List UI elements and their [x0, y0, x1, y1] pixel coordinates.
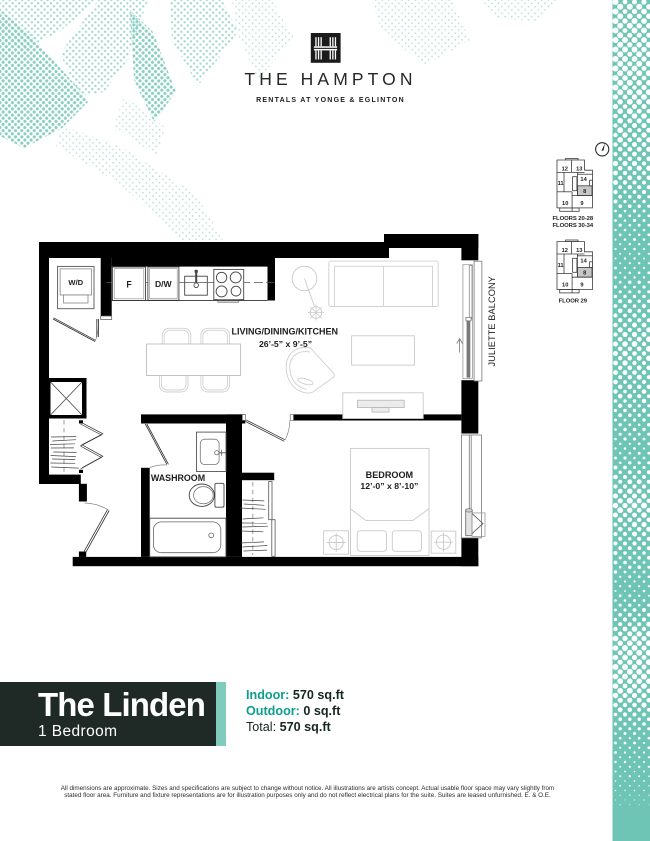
svg-text:D/W: D/W — [155, 279, 173, 289]
svg-text:12’-0” x 8’-10”: 12’-0” x 8’-10” — [360, 481, 418, 491]
svg-text:13: 13 — [576, 167, 582, 173]
svg-text:12: 12 — [562, 167, 568, 173]
svg-text:LIVING/DINING/KITCHEN: LIVING/DINING/KITCHEN — [232, 326, 339, 336]
svg-text:8: 8 — [583, 189, 586, 195]
svg-text:11: 11 — [558, 181, 564, 187]
svg-text:WASHROOM: WASHROOM — [151, 473, 205, 483]
svg-text:14: 14 — [580, 177, 587, 183]
svg-text:13: 13 — [576, 248, 582, 254]
svg-text:26’-5” x 9’-5”: 26’-5” x 9’-5” — [259, 339, 312, 349]
svg-text:FLOOR 29: FLOOR 29 — [559, 298, 588, 304]
svg-text:8: 8 — [583, 271, 586, 277]
svg-text:JULIETTE BALCONY: JULIETTE BALCONY — [487, 276, 497, 366]
svg-text:11: 11 — [558, 263, 564, 269]
svg-text:FLOORS 30-34: FLOORS 30-34 — [552, 223, 593, 229]
svg-text:FLOORS 20-28: FLOORS 20-28 — [552, 216, 593, 222]
svg-text:12: 12 — [562, 248, 568, 254]
svg-text:BEDROOM: BEDROOM — [366, 470, 414, 480]
svg-text:14: 14 — [580, 258, 587, 264]
svg-text:9: 9 — [580, 283, 583, 289]
svg-text:W/D: W/D — [68, 278, 83, 287]
svg-text:F: F — [126, 279, 132, 289]
svg-text:10: 10 — [562, 282, 568, 288]
svg-text:9: 9 — [580, 201, 583, 207]
svg-text:10: 10 — [562, 201, 568, 207]
